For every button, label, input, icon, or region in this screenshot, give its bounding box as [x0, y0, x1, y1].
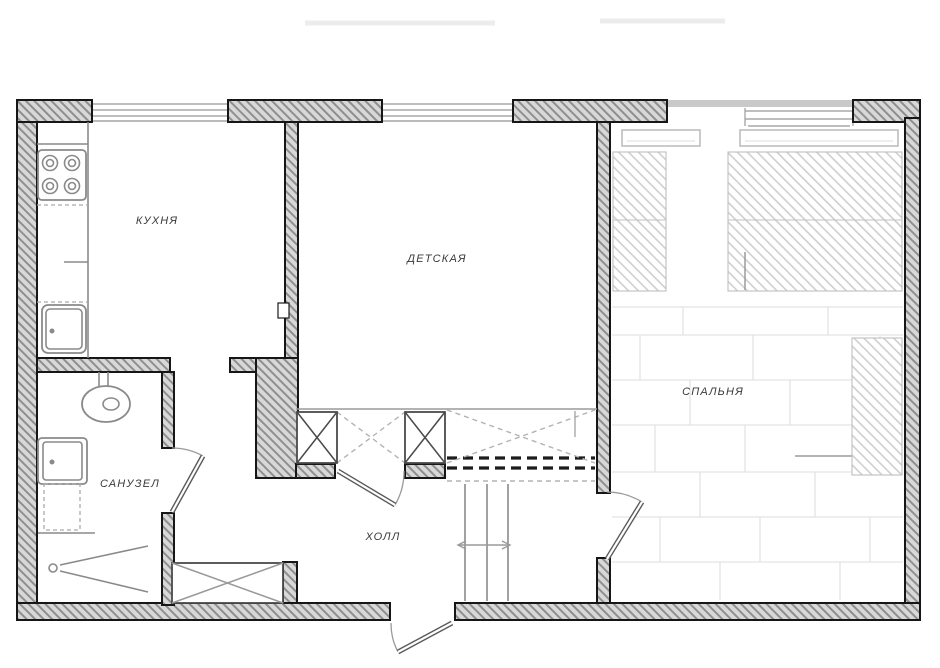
wardrobe-right-block: [852, 338, 902, 475]
bed-block: [728, 152, 902, 291]
hall-cabinet: [172, 563, 283, 603]
wall-nursery-hall-left: [296, 464, 335, 478]
wall-column-kitchen-hall: [256, 358, 298, 478]
shower-drain: [49, 546, 148, 592]
balcony-threshold: [668, 100, 853, 107]
wardrobe-box-2: [405, 412, 445, 463]
outer-wall-top-mid-left: [228, 100, 382, 122]
outer-wall-left: [17, 100, 37, 620]
wall-stub-kitchen-doorway: [230, 358, 256, 372]
machine-projection: [44, 484, 80, 530]
nursery-wardrobe-row: [296, 409, 597, 463]
wall-kitchen-nursery: [285, 122, 298, 362]
room-label-bedroom: СПАЛЬНЯ: [682, 386, 744, 398]
toilet: [82, 372, 130, 422]
wall-stub-bedroom-door: [597, 558, 610, 603]
washing-machine: [38, 438, 95, 533]
floor-plan-svg: КУХНЯ ДЕТСКАЯ СПАЛЬНЯ САНУЗЕЛ ХОЛЛ: [0, 0, 940, 668]
outer-wall-top-corner-left: [17, 100, 92, 122]
kitchen-fixtures: [37, 122, 88, 358]
kitchen-window: [92, 104, 228, 121]
wall-nursery-bedroom: [597, 122, 610, 493]
wall-stub-entrance: [283, 562, 297, 603]
nursery-window: [382, 104, 513, 121]
ghost-marks: [305, 21, 725, 23]
bedroom-door: [607, 492, 642, 559]
corridor-dashed-beam: [447, 458, 595, 481]
kitchen-sink: [42, 305, 86, 353]
balcony-window-unit: [668, 100, 853, 126]
corridor-lines: [458, 484, 510, 601]
outer-wall-bottom-left: [17, 603, 390, 620]
stove: [38, 150, 86, 200]
bedroom-furniture: [613, 152, 902, 475]
wall-nursery-hall-right: [405, 464, 445, 478]
bedroom-window-sill: [622, 130, 898, 146]
room-label-nursery: ДЕТСКАЯ: [405, 253, 466, 265]
room-label-kitchen: КУХНЯ: [136, 215, 178, 227]
wall-niche-socket: [278, 303, 289, 318]
nursery-door: [338, 471, 404, 505]
wall-kitchen-bathroom: [37, 358, 170, 372]
drain: [50, 329, 55, 334]
outer-wall-bottom-right: [455, 603, 920, 620]
room-label-bathroom: САНУЗЕЛ: [100, 478, 160, 490]
room-label-hall: ХОЛЛ: [364, 531, 400, 543]
outer-wall-top-mid-right: [513, 100, 667, 122]
bathroom-door: [172, 448, 203, 512]
wardrobe-box-1: [297, 412, 337, 463]
entrance-door: [391, 623, 452, 652]
wall-bathroom-right-upper: [162, 372, 174, 448]
outer-wall-right: [905, 118, 920, 620]
wardrobe-left-block: [613, 152, 666, 291]
floor-plan-canvas: КУХНЯ ДЕТСКАЯ СПАЛЬНЯ САНУЗЕЛ ХОЛЛ: [0, 0, 940, 668]
